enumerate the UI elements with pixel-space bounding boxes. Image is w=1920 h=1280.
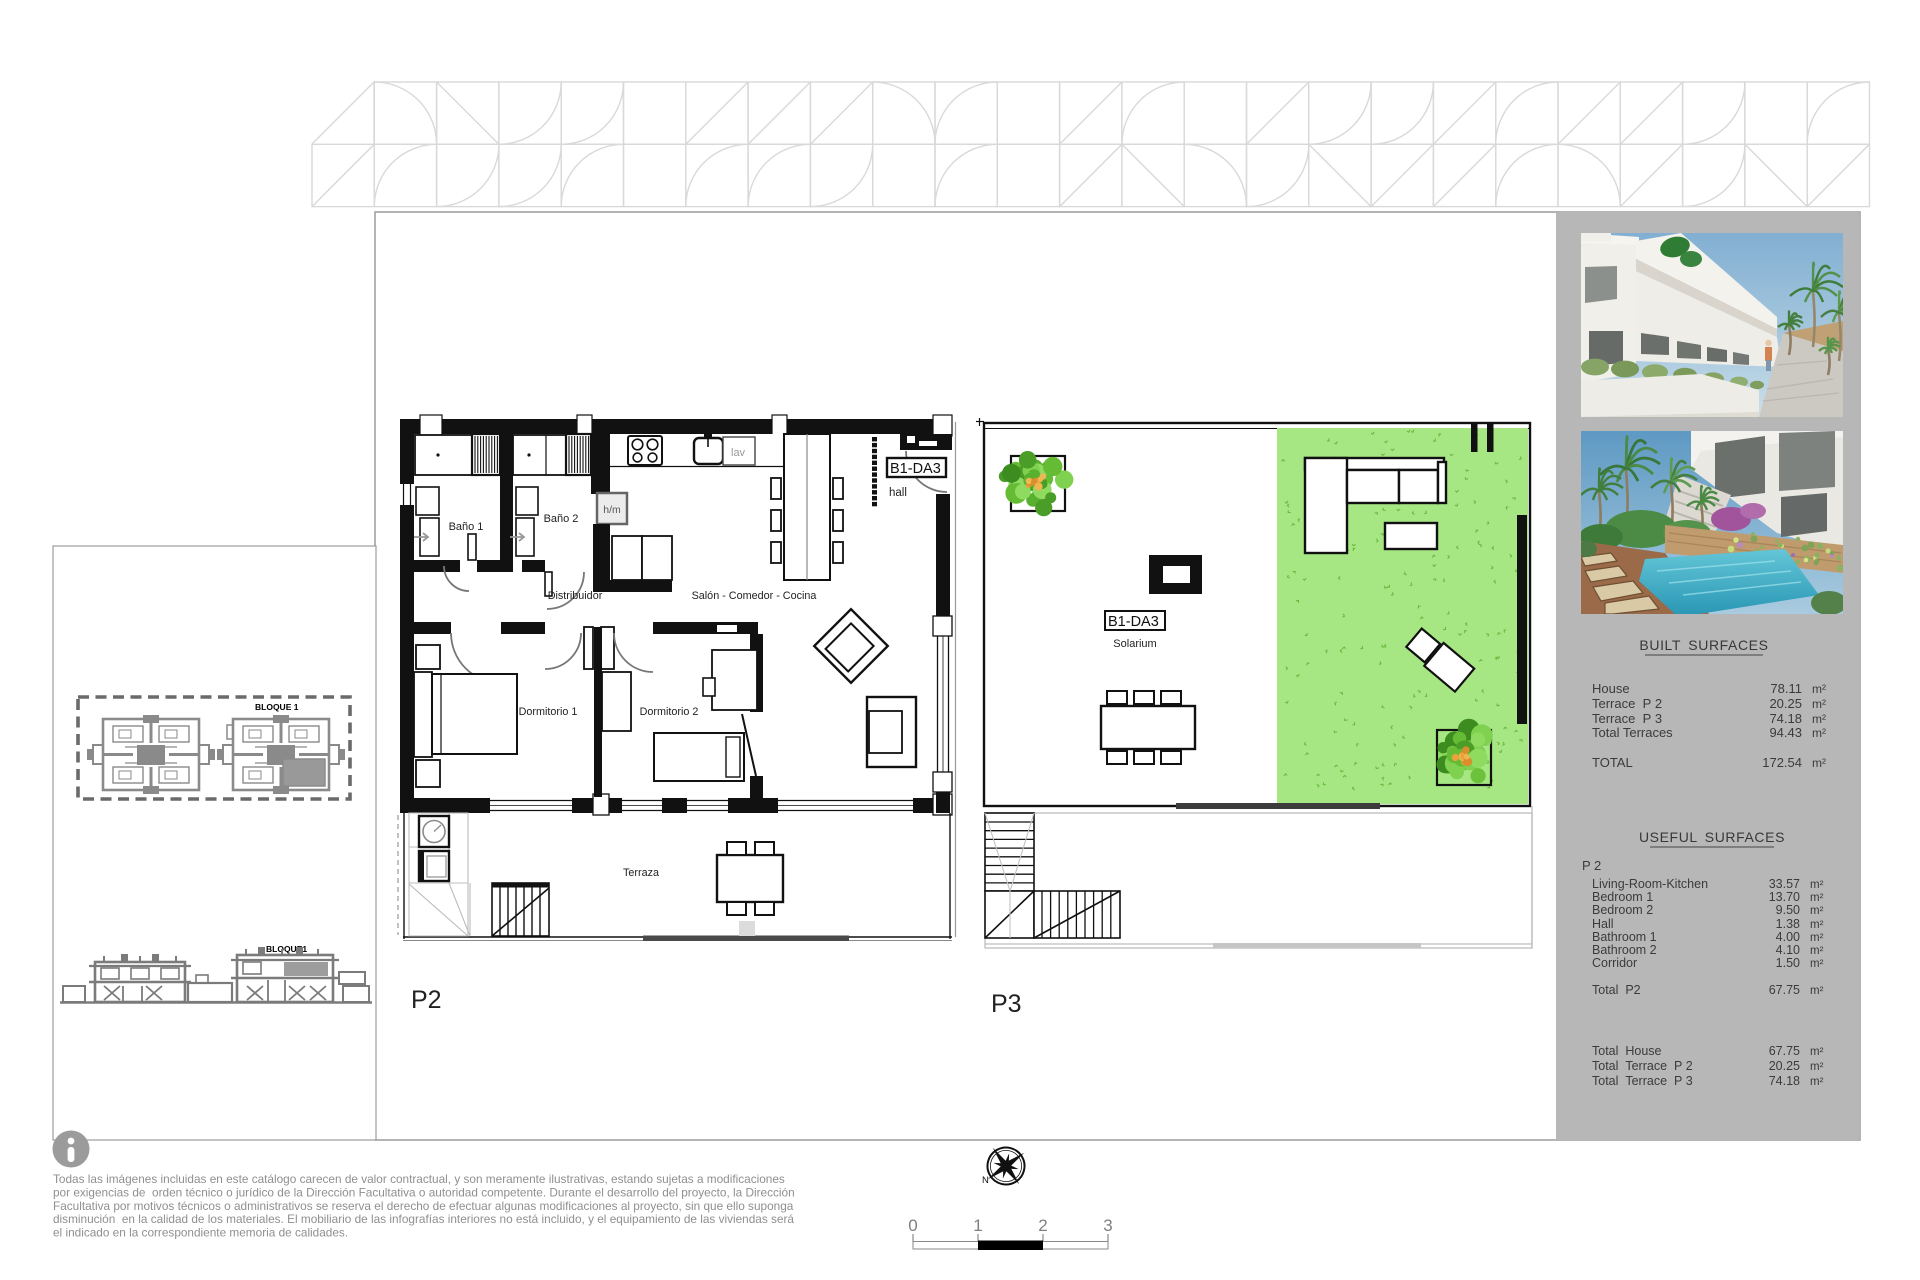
svg-text:Salón - Comedor - Cocina: Salón - Comedor - Cocina [692,590,817,602]
svg-text:TOTAL: TOTAL [1592,755,1633,770]
svg-text:N: N [982,1175,989,1186]
svg-text:Living-Room-Kitchen: Living-Room-Kitchen [1592,877,1708,891]
svg-text:P2: P2 [411,986,442,1014]
svg-text:2: 2 [1038,1216,1047,1235]
svg-text:m²: m² [1810,879,1824,891]
svg-text:74.18: 74.18 [1769,1074,1800,1088]
svg-text:Total Terraces: Total Terraces [1592,725,1673,740]
svg-text:Terraza: Terraza [623,867,659,879]
svg-text:m²: m² [1810,985,1824,997]
svg-text:m²: m² [1812,712,1826,726]
svg-text:13.70: 13.70 [1769,890,1800,904]
svg-text:78.11: 78.11 [1770,681,1802,696]
svg-text:4.00: 4.00 [1776,930,1800,944]
svg-text:Total Terrace P 2: Total Terrace P 2 [1592,1059,1693,1073]
svg-text:Baño 1: Baño 1 [449,521,484,533]
svg-text:4.10: 4.10 [1776,943,1800,957]
svg-text:172.54: 172.54 [1762,755,1802,770]
svg-text:m²: m² [1812,756,1826,770]
svg-text:m²: m² [1810,905,1824,917]
svg-text:Solarium: Solarium [1113,638,1156,650]
svg-text:B1-DA3: B1-DA3 [1108,614,1159,630]
svg-text:Distribuidor: Distribuidor [548,590,603,602]
svg-text:1: 1 [973,1216,982,1235]
svg-text:House: House [1592,681,1630,696]
svg-text:m²: m² [1810,1076,1824,1088]
svg-text:m²: m² [1810,892,1824,904]
svg-text:el indicado en la correspondie: el indicado en la correspondiente memori… [53,1226,348,1240]
svg-text:BUILT SURFACES: BUILT SURFACES [1639,637,1768,653]
svg-text:P3: P3 [991,990,1022,1018]
svg-text:Dormitorio 2: Dormitorio 2 [640,706,699,718]
svg-text:m²: m² [1810,1061,1824,1073]
svg-text:m²: m² [1810,958,1824,970]
svg-text:Dormitorio 1: Dormitorio 1 [519,706,578,718]
svg-text:m²: m² [1810,919,1824,931]
svg-text:20.25: 20.25 [1769,1059,1800,1073]
svg-text:m²: m² [1812,697,1826,711]
svg-text:67.75: 67.75 [1769,1044,1800,1058]
svg-text:1.38: 1.38 [1776,917,1800,931]
svg-text:Bedroom 2: Bedroom 2 [1592,903,1653,917]
svg-text:Total House: Total House [1592,1044,1662,1058]
svg-text:Total Terrace P 3: Total Terrace P 3 [1592,1074,1693,1088]
svg-text:74.18: 74.18 [1769,711,1802,726]
svg-text:Facultativa por motivos técnic: Facultativa por motivos técnicos o admin… [53,1199,794,1213]
svg-text:BLOQUE 1: BLOQUE 1 [255,702,299,712]
svg-text:33.57: 33.57 [1769,877,1800,891]
svg-text:Baño 2: Baño 2 [544,513,579,525]
svg-text:67.75: 67.75 [1769,983,1800,997]
svg-text:por exigencias de orden técni: por exigencias de orden técnico o jurídi… [53,1185,795,1199]
svg-text:9.50: 9.50 [1776,903,1800,917]
svg-text:Terrace P 2: Terrace P 2 [1592,696,1662,711]
svg-text:Total P2: Total P2 [1592,983,1641,997]
svg-text:20.25: 20.25 [1769,696,1802,711]
svg-text:hall: hall [889,487,907,499]
svg-text:1.50: 1.50 [1776,956,1800,970]
svg-text:USEFUL SURFACES: USEFUL SURFACES [1639,829,1785,845]
svg-text:94.43: 94.43 [1769,725,1802,740]
svg-text:m²: m² [1810,945,1824,957]
svg-text:m²: m² [1810,932,1824,944]
svg-text:Corridor: Corridor [1592,956,1637,970]
svg-text:Bathroom 2: Bathroom 2 [1592,943,1657,957]
svg-text:m²: m² [1810,1046,1824,1058]
svg-text:3: 3 [1103,1216,1112,1235]
svg-text:0: 0 [908,1216,917,1235]
svg-text:B1-DA3: B1-DA3 [890,461,941,477]
svg-text:m²: m² [1812,682,1826,696]
svg-text:lav: lav [731,447,746,459]
svg-text:m²: m² [1812,726,1826,740]
svg-text:disminución en la calidad de: disminución en la calidad de los materia… [53,1212,794,1226]
svg-text:h/m: h/m [603,504,621,516]
svg-text:Hall: Hall [1592,917,1614,931]
svg-text:P 2: P 2 [1582,858,1601,873]
svg-text:Bedroom 1: Bedroom 1 [1592,890,1653,904]
svg-text:Bathroom 1: Bathroom 1 [1592,930,1657,944]
svg-text:Todas las imágenes incluidas e: Todas las imágenes incluidas en este cat… [53,1172,785,1186]
svg-text:Terrace P 3: Terrace P 3 [1592,711,1662,726]
